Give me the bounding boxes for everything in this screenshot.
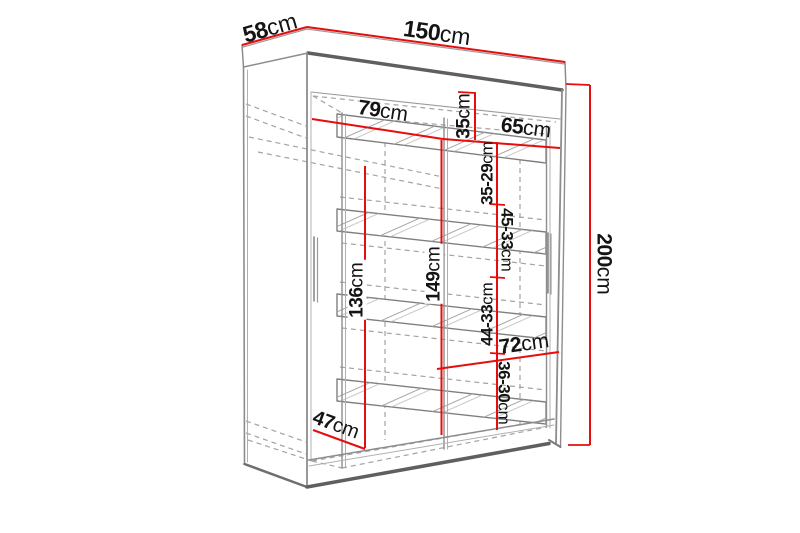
dim-right-shelf-label: 65cm (500, 115, 553, 142)
dim-height-label: 200cm (594, 233, 615, 295)
dim-right-gap-3-label: 44-33cm (479, 282, 496, 346)
wardrobe-drawing (0, 0, 800, 533)
dim-right-gap-1-label: 35-29cm (479, 141, 496, 205)
left-door-handle (314, 237, 318, 302)
dim-top-gap-label: 35cm (455, 93, 474, 138)
dim-right-gap-4-label: 36-30cm (496, 361, 513, 425)
dim-hanging-label: 136cm (348, 260, 367, 320)
dim-right-gaps-tick-2 (490, 277, 505, 278)
dim-interior-height-label: 149cm (425, 244, 444, 304)
dim-height-tick-top (566, 84, 590, 85)
dim-right-gap-2-label: 45-33cm (499, 208, 516, 272)
wardrobe-dimension-diagram: 58cm 150cm 79cm 35cm 65cm 35-29cm 45-33c… (0, 0, 800, 533)
